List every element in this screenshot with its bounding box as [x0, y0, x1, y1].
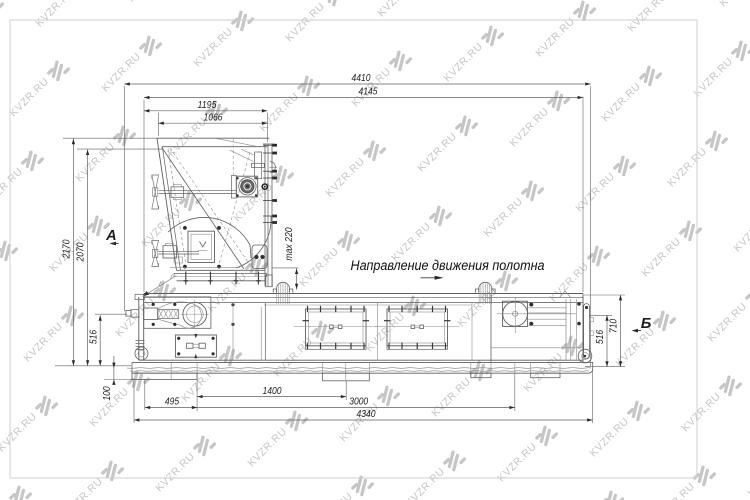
svg-text:Направление движения полотна: Направление движения полотна — [351, 258, 545, 274]
svg-text:516: 516 — [88, 330, 99, 345]
svg-text:3000: 3000 — [349, 397, 368, 408]
svg-text:4410: 4410 — [352, 73, 371, 84]
svg-text:4340: 4340 — [357, 409, 376, 420]
svg-text:1066: 1066 — [204, 113, 223, 124]
svg-text:2170: 2170 — [62, 239, 73, 259]
svg-text:1195: 1195 — [198, 100, 217, 111]
svg-text:100: 100 — [102, 386, 113, 401]
svg-text:Б: Б — [641, 315, 652, 332]
svg-text:max 220: max 220 — [284, 227, 295, 261]
svg-text:495: 495 — [165, 397, 180, 408]
svg-text:2070: 2070 — [76, 242, 87, 262]
svg-text:710: 710 — [609, 319, 620, 334]
svg-text:4145: 4145 — [359, 87, 378, 98]
svg-text:516: 516 — [595, 330, 606, 345]
svg-text:1400: 1400 — [263, 386, 282, 397]
svg-text:А: А — [105, 228, 116, 244]
